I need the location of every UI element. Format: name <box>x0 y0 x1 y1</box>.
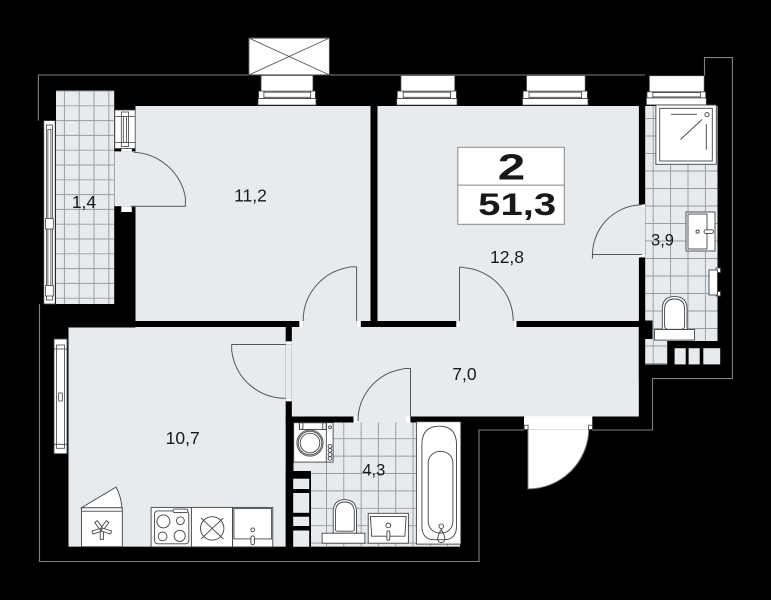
svg-text:3,9: 3,9 <box>651 232 674 250</box>
svg-text:2: 2 <box>498 146 526 187</box>
svg-text:1,4: 1,4 <box>72 192 97 212</box>
svg-text:11,2: 11,2 <box>234 186 267 206</box>
svg-text:7,0: 7,0 <box>452 364 477 384</box>
svg-text:12,8: 12,8 <box>490 247 524 267</box>
svg-text:51,3: 51,3 <box>478 186 556 222</box>
svg-text:4,3: 4,3 <box>362 461 385 479</box>
svg-text:10,7: 10,7 <box>166 428 200 448</box>
